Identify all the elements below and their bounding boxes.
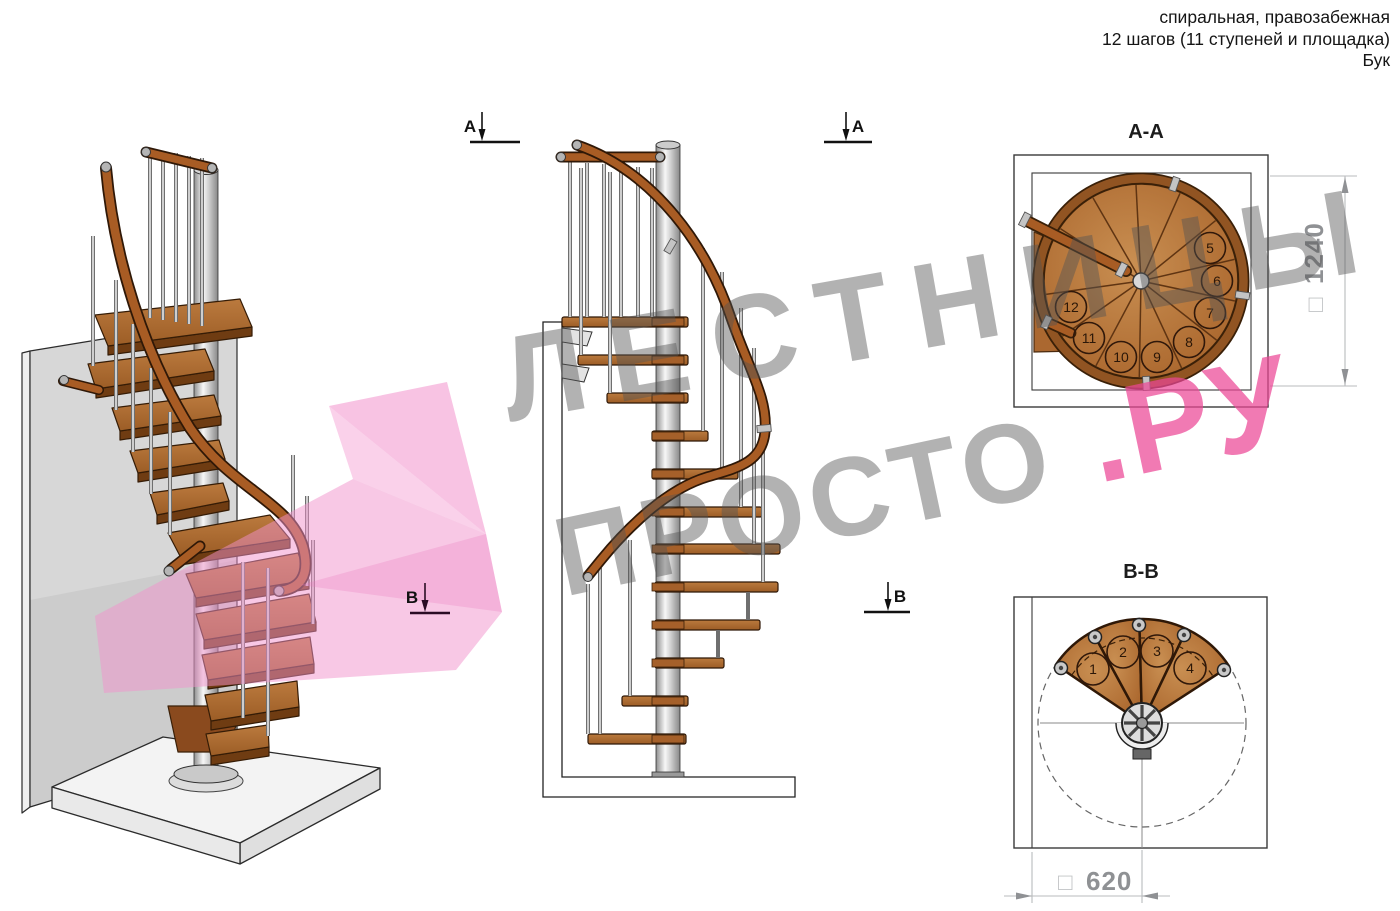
- section-marker-a-right: А: [824, 112, 872, 142]
- title-block: спиральная, правозабежная 12 шагов (11 с…: [1102, 7, 1390, 72]
- arrow-down-icon: [479, 129, 486, 141]
- marker-letter: А: [464, 117, 476, 136]
- stair-type-label: спиральная, правозабежная: [1102, 7, 1390, 29]
- marker-letter: В: [894, 587, 906, 606]
- material-label: Бук: [1102, 50, 1390, 72]
- marker-letter: А: [852, 117, 864, 136]
- drawing-sheet: 5 6 7 8 9 10 11 12 □ 1240: [0, 0, 1400, 911]
- section-marker-a-left: А: [464, 112, 520, 142]
- annotations: А-А В-В А А В В: [0, 0, 1400, 911]
- marker-letter: В: [406, 588, 418, 607]
- section-bb-title: В-В: [1123, 561, 1159, 583]
- arrow-down-icon: [885, 599, 892, 611]
- arrow-down-icon: [422, 600, 429, 612]
- arrow-down-icon: [843, 129, 850, 141]
- section-marker-b-left: В: [406, 583, 450, 613]
- section-marker-b-right: В: [864, 582, 910, 612]
- step-count-label: 12 шагов (11 ступеней и площадка): [1102, 29, 1390, 51]
- section-aa-title: А-А: [1128, 121, 1164, 143]
